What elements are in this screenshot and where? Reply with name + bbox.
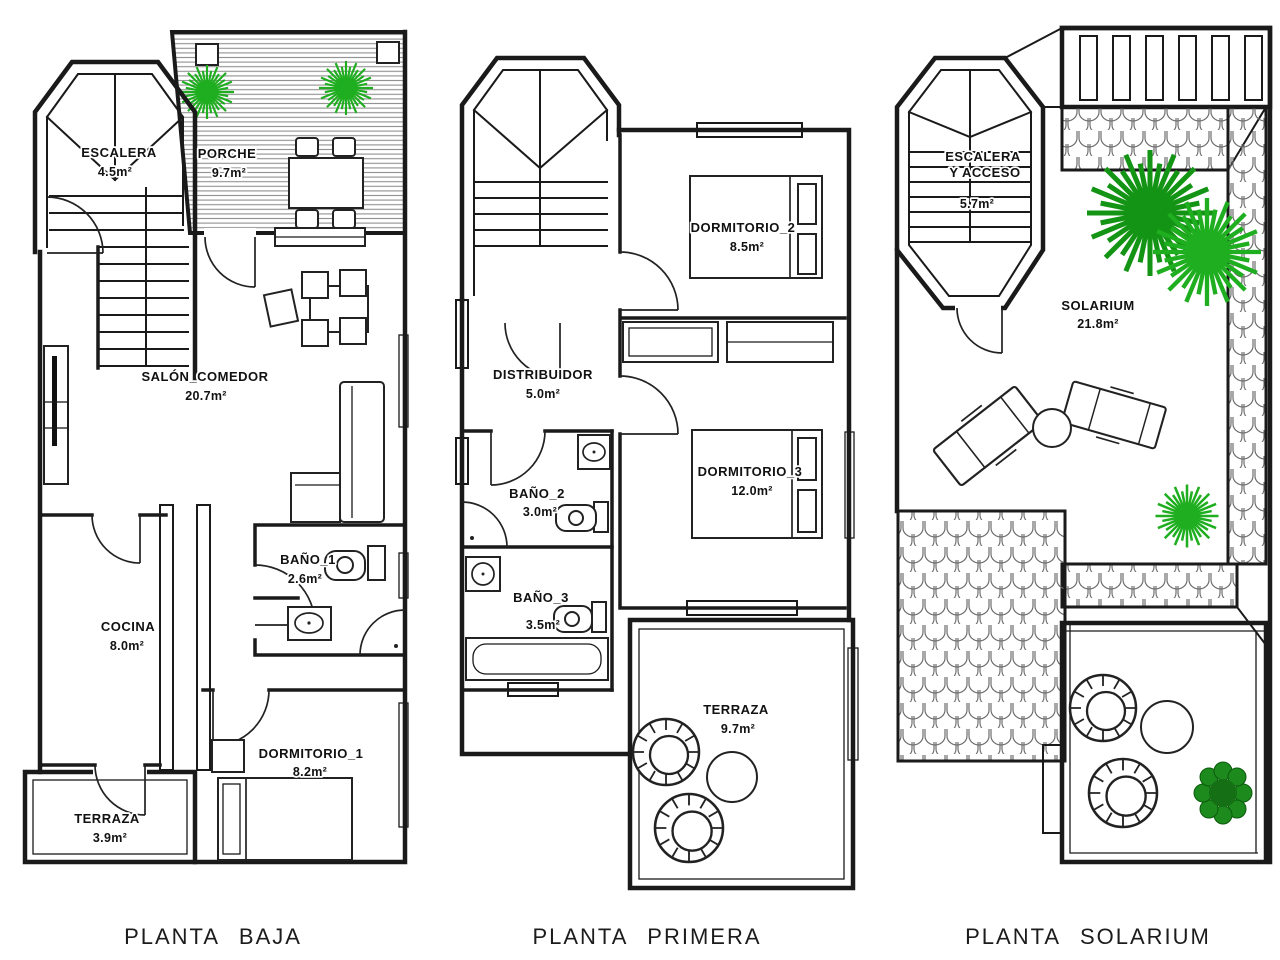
room-label-terraza: TERRAZA (74, 811, 140, 826)
room-label-distribuidor: DISTRIBUIDOR (493, 367, 593, 382)
bedroom3-door (620, 376, 678, 434)
stair-treads (50, 188, 188, 366)
stair-treads (474, 168, 607, 246)
floor-plan-drawing: ESCALERA 4.5m² PORCHE 9.7m² SALÓN_COMEDO… (0, 0, 1280, 960)
sun-lounger-icon (1060, 377, 1167, 454)
plan-planta-solarium: ESCALERA Y ACCESO 5.7m² SOLARIUM 21.8m² (897, 28, 1270, 862)
kitchen-door (92, 515, 140, 563)
nightstand-icon (212, 740, 244, 772)
room-area-porche: 9.7m² (212, 166, 246, 180)
caption-planta-solarium: PLANTA SOLARIUM (965, 924, 1211, 949)
caption-planta-primera: PLANTA PRIMERA (532, 924, 761, 949)
terrace (630, 620, 858, 888)
room-area-distribuidor: 5.0m² (526, 387, 560, 401)
plant-bush (319, 61, 373, 115)
toilet-icon (368, 546, 385, 580)
room-label-solarium: SOLARIUM (1061, 298, 1134, 313)
sofa-icon (291, 382, 384, 522)
wicker-chair-icon (1089, 759, 1157, 827)
room-area-dormitorio1: 8.2m² (293, 765, 327, 779)
room-label-porche: PORCHE (198, 146, 257, 161)
room-label-dormitorio1: DORMITORIO_1 (259, 746, 364, 761)
porch-planter (377, 42, 399, 63)
wicker-chair-icon (655, 794, 723, 862)
plan-planta-primera: DORMITORIO_2 8.5m² DISTRIBUIDOR 5.0m² DO… (456, 58, 858, 888)
room-area-dormitorio2: 8.5m² (730, 240, 764, 254)
roof-terrace (1062, 623, 1266, 862)
floor-plan-sheet: ESCALERA 4.5m² PORCHE 9.7m² SALÓN_COMEDO… (0, 0, 1280, 960)
wardrobes (623, 322, 833, 362)
room-area-terraza: 9.7m² (721, 722, 755, 736)
bedroom2-door (620, 252, 678, 310)
shower-corner (462, 502, 507, 547)
plant-bush (180, 65, 234, 119)
room-label-salon: SALÓN_COMEDOR (141, 369, 268, 384)
porch-deck (172, 32, 405, 246)
round-table-icon (1141, 701, 1193, 753)
staircase-tower (462, 58, 619, 378)
entry-door (47, 197, 103, 253)
room-label-dormitorio3: DORMITORIO_3 (698, 464, 803, 479)
room-label-dormitorio2: DORMITORIO_2 (691, 220, 796, 235)
round-table-icon (707, 752, 757, 802)
room-area-bano1: 2.6m² (288, 572, 322, 586)
caption-planta-baja: PLANTA BAJA (124, 924, 302, 949)
room-area-cocina: 8.0m² (110, 639, 144, 653)
room-label-bano2: BAÑO_2 (509, 486, 565, 501)
door-opening (955, 302, 1001, 314)
pergola-band (1062, 28, 1270, 107)
bedroom1-door (213, 690, 269, 746)
wicker-chair-icon (1070, 675, 1136, 741)
plan-planta-baja: ESCALERA 4.5m² PORCHE 9.7m² SALÓN_COMEDO… (25, 32, 408, 862)
solarium-furniture (930, 377, 1168, 490)
room-label-escalera: ESCALERA (81, 145, 157, 160)
door-opening (93, 766, 147, 778)
room-area-dormitorio3: 12.0m² (731, 484, 772, 498)
wicker-chair-icon (633, 719, 699, 785)
room-area-escalera: 5.7m² (960, 197, 994, 211)
bath2-door (491, 431, 545, 485)
room-label-terraza: TERRAZA (703, 702, 769, 717)
bed-icon (218, 778, 352, 860)
plan-captions: PLANTA BAJA PLANTA PRIMERA PLANTA SOLARI… (124, 924, 1211, 949)
porch-planter (196, 44, 218, 65)
palm-tree-icon (1153, 198, 1261, 306)
room-area-solarium: 21.8m² (1077, 317, 1118, 331)
room-label-cocina: COCINA (101, 619, 155, 634)
room-area-terraza: 3.9m² (93, 831, 127, 845)
room-area-bano2: 3.0m² (523, 505, 557, 519)
room-label-bano1: BAÑO_1 (280, 552, 336, 567)
room-area-salon: 20.7m² (185, 389, 226, 403)
door-opening (204, 228, 256, 238)
room-area-escalera: 4.5m² (98, 165, 132, 179)
sun-lounger-icon (930, 382, 1046, 490)
plant-bush (1156, 485, 1219, 548)
porch-door (205, 237, 255, 287)
room-area-bano3: 3.5m² (526, 618, 560, 632)
staircase-tower (35, 62, 195, 380)
leafy-plant-icon (1194, 762, 1252, 824)
toilet-icon (592, 602, 606, 632)
solarium-door (957, 308, 1002, 353)
tv-unit-icon (44, 346, 68, 484)
room-label-escalera: ESCALERA (945, 149, 1021, 164)
room-label-bano3: BAÑO_3 (513, 590, 569, 605)
shower-corner (360, 610, 405, 655)
room-label-escalera-line2: Y ACCESO (949, 165, 1020, 180)
round-table-icon (1033, 409, 1071, 447)
